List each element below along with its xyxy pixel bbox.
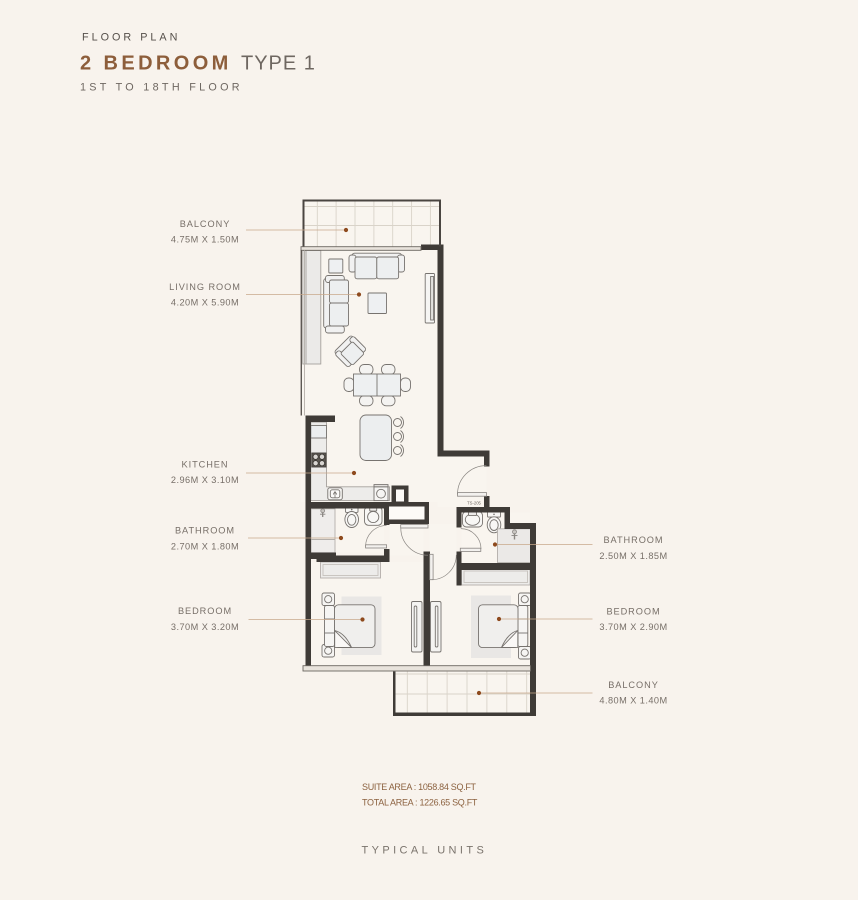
svg-text:TYPICAL UNITS: TYPICAL UNITS <box>362 845 488 857</box>
svg-text:BALCONY: BALCONY <box>608 680 659 690</box>
svg-text:BATHROOM: BATHROOM <box>603 535 663 545</box>
svg-text:2.50M X 1.85M: 2.50M X 1.85M <box>599 551 667 561</box>
svg-text:FLOOR PLAN: FLOOR PLAN <box>82 32 180 44</box>
svg-text:BATHROOM: BATHROOM <box>175 526 235 536</box>
svg-text:TYPE 1: TYPE 1 <box>241 53 316 75</box>
svg-text:2.96M X 3.10M: 2.96M X 3.10M <box>171 475 239 485</box>
svg-text:1ST TO 18TH FLOOR: 1ST TO 18TH FLOOR <box>80 82 243 94</box>
svg-text:2 BEDROOM: 2 BEDROOM <box>80 53 232 75</box>
svg-text:3.70M X 3.20M: 3.70M X 3.20M <box>171 622 239 632</box>
svg-text:BALCONY: BALCONY <box>180 219 231 229</box>
svg-text:KITCHEN: KITCHEN <box>182 460 229 470</box>
svg-text:2.70M X 1.80M: 2.70M X 1.80M <box>171 542 239 552</box>
svg-text:TS-205: TS-205 <box>467 501 481 506</box>
svg-text:4.75M X 1.50M: 4.75M X 1.50M <box>171 235 239 245</box>
svg-text:3.70M X 2.90M: 3.70M X 2.90M <box>599 622 667 632</box>
svg-text:SUITE AREA : 1058.84 SQ.FT: SUITE AREA : 1058.84 SQ.FT <box>362 782 477 792</box>
svg-text:BEDROOM: BEDROOM <box>178 606 232 616</box>
svg-text:TOTAL AREA : 1226.65 SQ.FT: TOTAL AREA : 1226.65 SQ.FT <box>362 798 478 808</box>
svg-text:4.80M X 1.40M: 4.80M X 1.40M <box>599 696 667 706</box>
svg-text:BEDROOM: BEDROOM <box>606 607 660 617</box>
svg-text:LIVING ROOM: LIVING ROOM <box>169 282 241 292</box>
svg-text:4.20M X 5.90M: 4.20M X 5.90M <box>171 298 239 308</box>
